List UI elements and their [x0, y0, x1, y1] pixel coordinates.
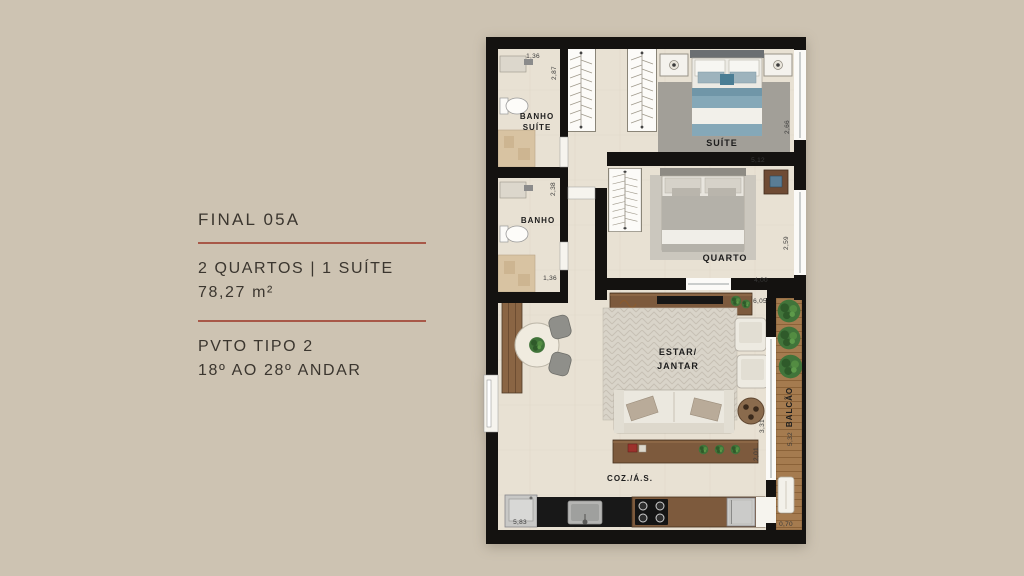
suite-furniture: [658, 50, 792, 152]
label-balcao: BALCÃO: [785, 387, 794, 427]
divider-line-bottom: [198, 320, 426, 322]
dim-banho-suite-width: 1,36: [526, 53, 540, 60]
dim-cozinha-width: 5,83: [513, 519, 527, 526]
label-estar-line1: ESTAR/: [659, 347, 697, 357]
pavement-type: PVTO TIPO 2: [198, 335, 430, 359]
floor-plan: BANHO SUÍTE SUÍTE BANHO QUARTO ESTAR/ JA…: [480, 30, 826, 551]
label-cozinha: COZ./Á.S.: [607, 474, 653, 483]
label-quarto: QUARTO: [703, 253, 748, 263]
rooms-summary: 2 QUARTOS | 1 SUÍTE: [198, 257, 430, 281]
dim-banho-height: 2,38: [550, 182, 557, 196]
divider-line-top: [198, 242, 426, 244]
dim-suite-height: 2,66: [784, 120, 791, 134]
dim-quarto-height: 2,59: [783, 236, 790, 250]
label-suite: SUÍTE: [706, 138, 738, 148]
dim-banho-suite-height: 2,87: [551, 66, 558, 80]
unit-title: FINAL 05A: [198, 210, 430, 230]
label-banho: BANHO: [521, 216, 555, 225]
floor-range: 18º AO 28º ANDAR: [198, 359, 430, 383]
dim-estar-height-upper: 3,31: [759, 419, 766, 433]
page-background: FINAL 05A 2 QUARTOS | 1 SUÍTE 78,27 m² P…: [0, 0, 1024, 576]
dim-quarto-width: 4,00: [754, 277, 768, 284]
dim-estar-width: 6,05: [753, 298, 767, 305]
label-estar-line2: JANTAR: [657, 361, 699, 371]
floor-plan-container: BANHO SUÍTE SUÍTE BANHO QUARTO ESTAR/ JA…: [480, 30, 826, 551]
dim-balcao-height: 5,32: [787, 432, 794, 446]
label-banho-suite-line1: BANHO: [520, 112, 554, 121]
dim-banho-width: 1,36: [543, 275, 557, 282]
dim-balcao-width: 0,70: [779, 521, 793, 528]
label-banho-suite-line2: SUÍTE: [523, 123, 552, 132]
unit-area: 78,27 m²: [198, 281, 430, 305]
dim-suite-width: 5,12: [751, 157, 765, 164]
info-panel: FINAL 05A 2 QUARTOS | 1 SUÍTE 78,27 m² P…: [198, 210, 430, 383]
dim-estar-height-lower: 2,01: [753, 447, 760, 461]
